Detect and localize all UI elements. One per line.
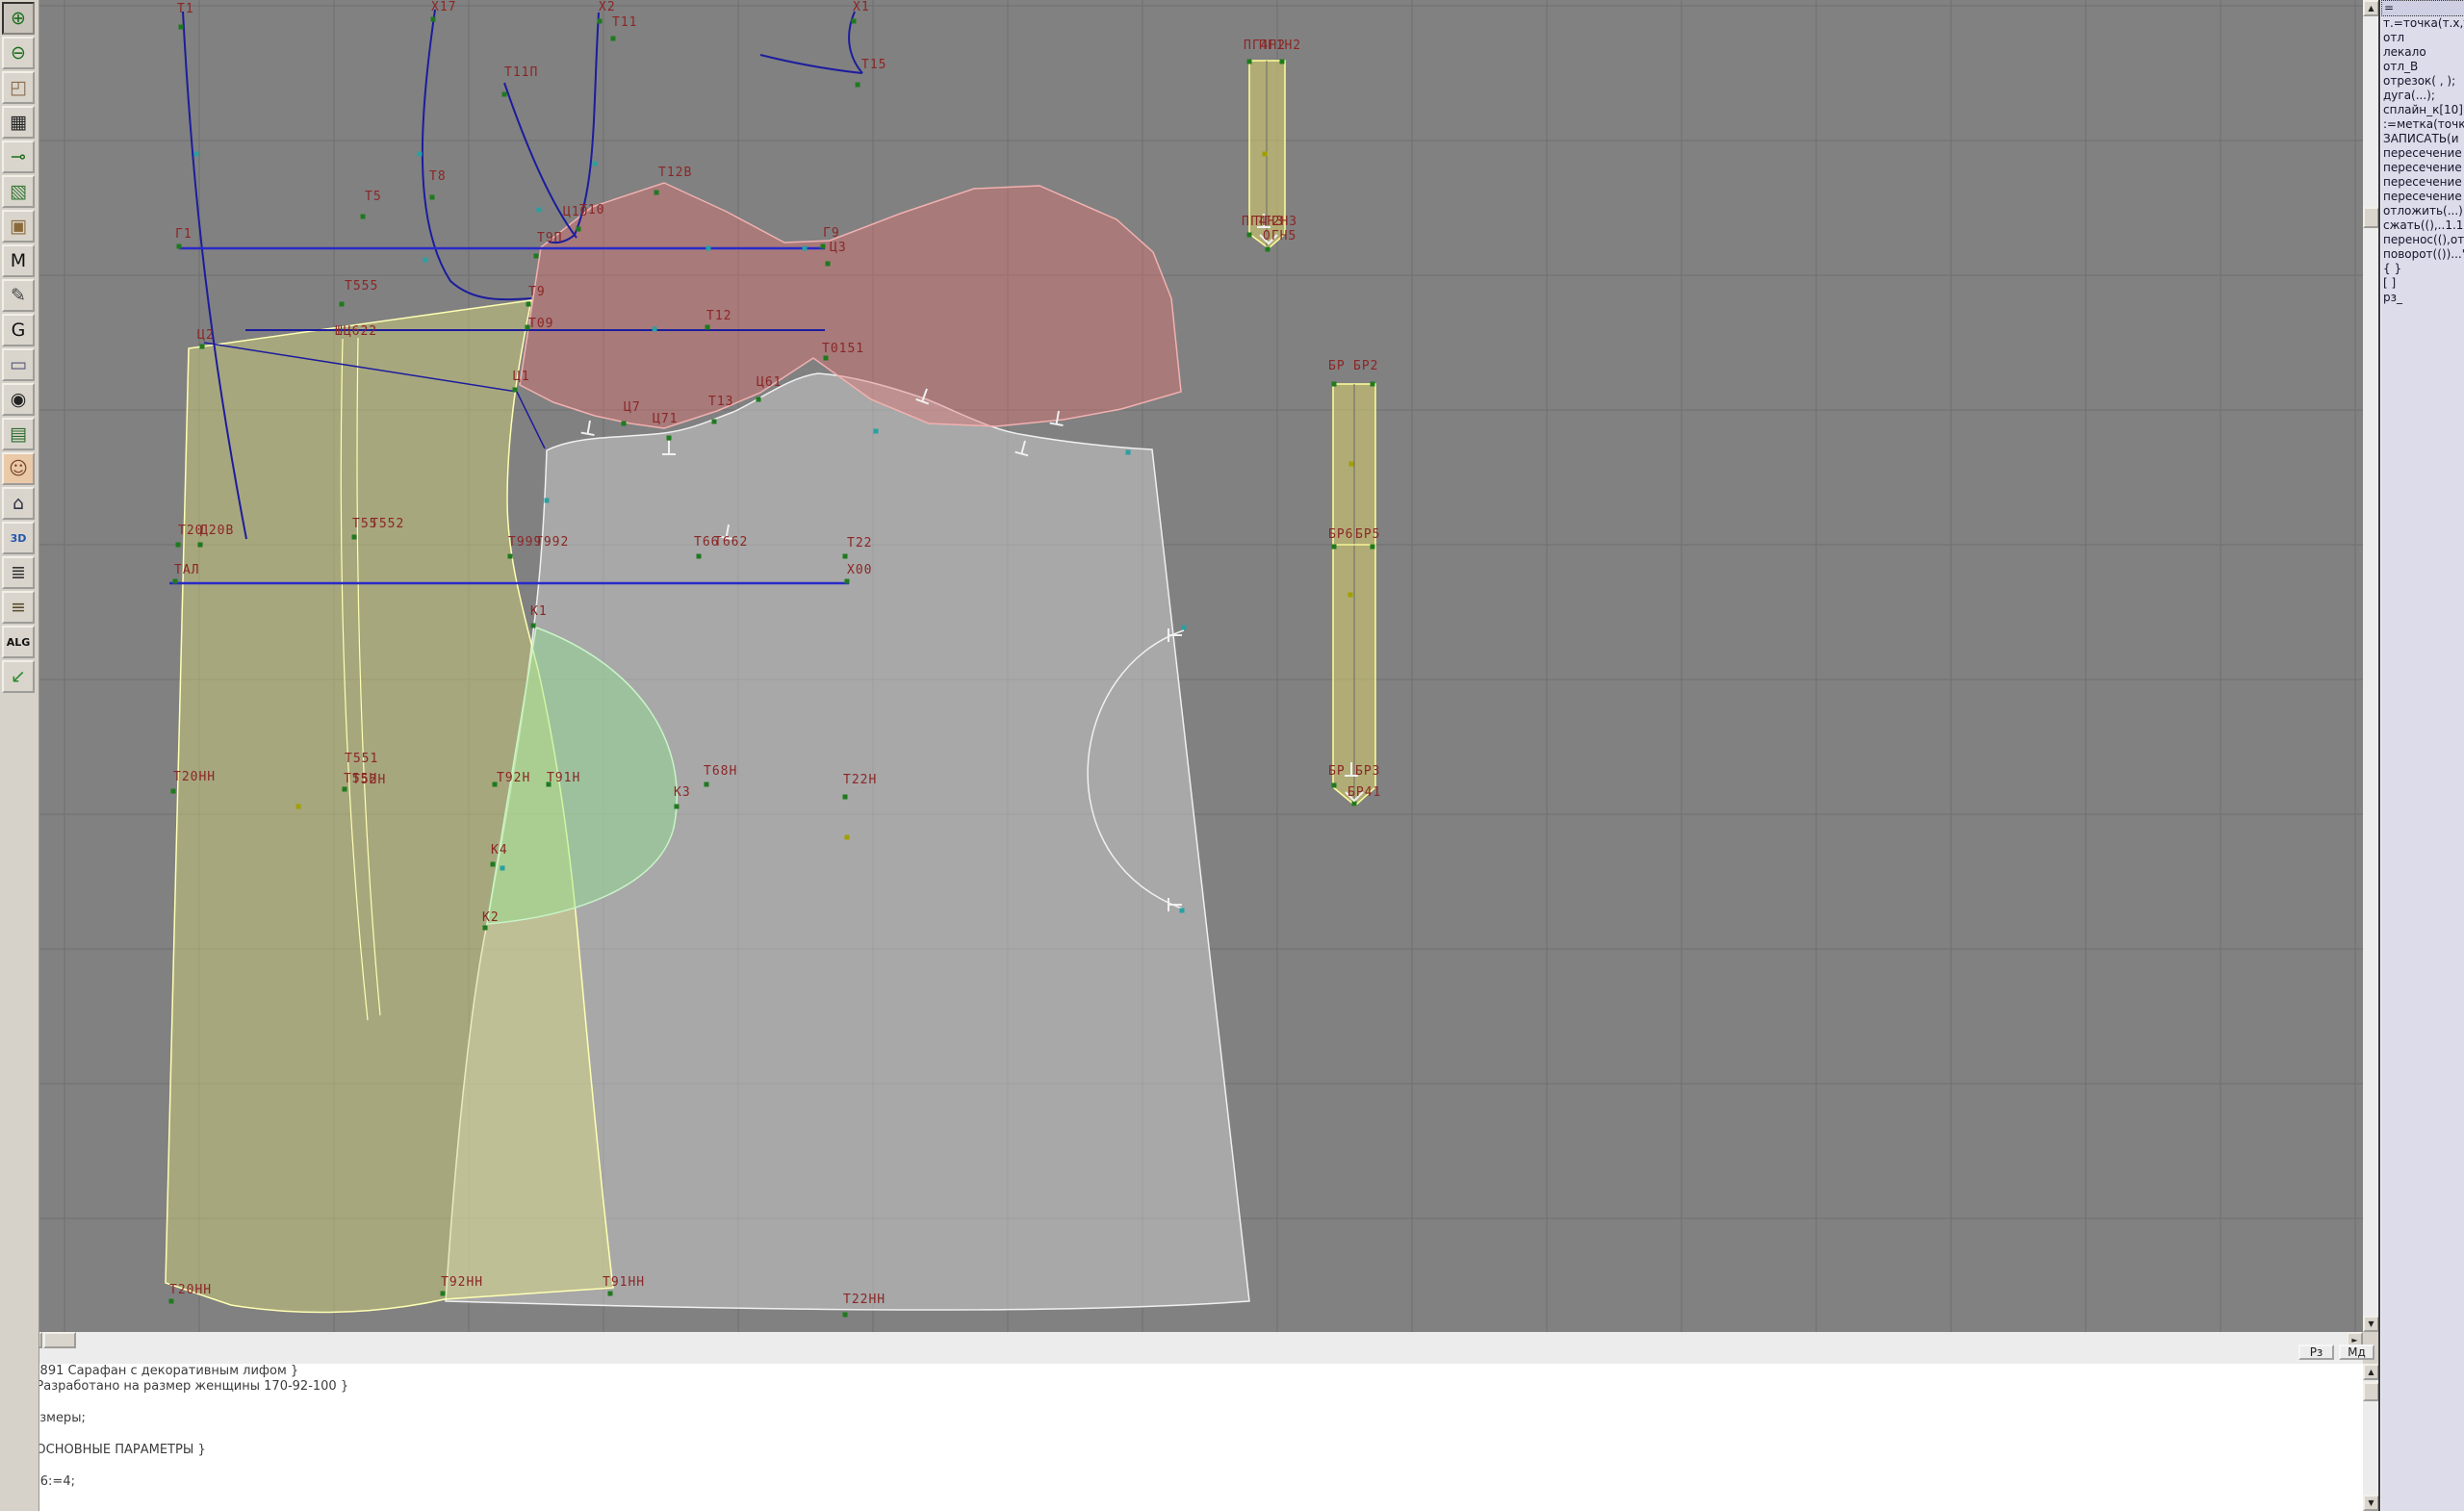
command-item[interactable]: сжать((),..1.1 xyxy=(2381,218,2464,233)
editor-line: { Разработано на размер женщины 170-92-1… xyxy=(24,1379,2363,1395)
canvas-vertical-scrollbar[interactable]: ▲ ▼ xyxy=(2363,0,2379,1332)
rz-button[interactable]: Рз xyxy=(2298,1345,2334,1360)
canvas-horizontal-scrollbar[interactable]: ◄ ► xyxy=(24,1332,2363,1348)
pattern-hand-icon: ◰ xyxy=(10,79,27,97)
editor-scroll-thumb[interactable] xyxy=(2363,1382,2379,1401)
vertical-scroll-thumb[interactable] xyxy=(2363,207,2379,228)
drawing-canvas[interactable] xyxy=(0,0,2464,1332)
grid-icon[interactable]: ▦ xyxy=(2,106,35,139)
3d-icon[interactable]: 3D xyxy=(2,522,35,554)
command-item[interactable]: перенос((),от xyxy=(2381,233,2464,247)
editor-line: размеры; xyxy=(24,1411,2363,1426)
editor-line xyxy=(24,1458,2363,1473)
scroll-down-icon[interactable]: ▼ xyxy=(2363,1316,2379,1332)
editor-vertical-scrollbar[interactable]: ▲ ▼ xyxy=(2363,1364,2379,1511)
command-item[interactable]: [ ] xyxy=(2381,276,2464,291)
portrait-photo-icon: ☺ xyxy=(9,460,28,478)
command-item[interactable]: ЗАПИСАТЬ(и xyxy=(2381,132,2464,146)
zoom-in-icon: ⊕ xyxy=(11,10,26,28)
parameters-list-icon[interactable]: ≣ xyxy=(2,556,35,589)
clear-broom-icon[interactable]: ↙ xyxy=(2,660,35,693)
pattern-cad-window: Т1Х17Х2Т11Х1Т15Т11ПТ8Т5Т12ВГ1Т9ПЦ10Т10Г9… xyxy=(0,0,2464,1511)
alg-document-icon: ALG xyxy=(7,637,31,648)
editor-line xyxy=(24,1396,2363,1411)
command-item[interactable]: лекало xyxy=(2381,45,2464,60)
measure-line-icon[interactable]: ⊸ xyxy=(2,141,35,173)
horizontal-scroll-thumb[interactable] xyxy=(43,1332,76,1348)
pattern-m-icon: M xyxy=(11,252,26,270)
command-item[interactable]: отл xyxy=(2381,31,2464,45)
chart-document-icon: ▤ xyxy=(10,425,27,444)
image-icon[interactable]: ▧ xyxy=(2,175,35,208)
pattern-piece-icon: ▣ xyxy=(10,218,27,236)
portrait-photo-icon[interactable]: ☺ xyxy=(2,452,35,485)
command-item[interactable]: = xyxy=(2381,0,2464,16)
md-button[interactable]: Мд xyxy=(2339,1345,2374,1360)
grid-icon: ▦ xyxy=(10,114,27,132)
tool-palette: ⊕⊖◰▦⊸▧▣M✎G▭◉▤☺⌂3D≣≡ALG↙ xyxy=(0,0,39,1511)
command-item[interactable]: :=метка(точк xyxy=(2381,117,2464,132)
editor-line: {5891 Сарафан с декоративным лифом } xyxy=(24,1364,2363,1379)
editor-scroll-down-icon[interactable]: ▼ xyxy=(2363,1495,2379,1511)
command-item[interactable]: поворот(())..." xyxy=(2381,247,2464,262)
pattern-piece-icon[interactable]: ▣ xyxy=(2,210,35,243)
command-item[interactable]: пересечение xyxy=(2381,161,2464,175)
zoom-out-icon[interactable]: ⊖ xyxy=(2,37,35,69)
command-item[interactable]: т.=точка(т.х,т xyxy=(2381,16,2464,31)
chart-document-icon[interactable]: ▤ xyxy=(2,418,35,450)
pattern-m-icon[interactable]: M xyxy=(2,244,35,277)
command-item[interactable]: { } xyxy=(2381,262,2464,276)
camera-icon[interactable]: ◉ xyxy=(2,383,35,416)
drafting-tools-icon: ✎ xyxy=(11,287,26,305)
command-item[interactable]: рз_ xyxy=(2381,291,2464,305)
zoom-out-icon: ⊖ xyxy=(11,44,26,63)
camera-icon: ◉ xyxy=(11,391,27,409)
editor-line: п16:=4; xyxy=(24,1474,2363,1490)
command-item[interactable]: пересечение xyxy=(2381,190,2464,204)
garment-sketch-icon[interactable]: ⌂ xyxy=(2,487,35,520)
zoom-in-icon[interactable]: ⊕ xyxy=(2,2,35,35)
status-row: 0 xyxy=(24,1348,2363,1364)
pattern-drawing xyxy=(0,0,2464,1332)
clear-broom-icon: ↙ xyxy=(11,668,26,686)
command-list-panel: =т.=точка(т.х,тотллекалоотл_Вотрезок( , … xyxy=(2380,0,2464,1511)
measure-line-icon: ⊸ xyxy=(11,148,26,166)
scroll-up-icon[interactable]: ▲ xyxy=(2363,0,2379,16)
editor-line xyxy=(24,1427,2363,1443)
pattern-g-icon[interactable]: G xyxy=(2,314,35,346)
command-item[interactable]: отрезок( , ); xyxy=(2381,74,2464,89)
command-item[interactable]: отложить(...); xyxy=(2381,204,2464,218)
program-text-editor[interactable]: {5891 Сарафан с декоративным лифом }{ Ра… xyxy=(24,1364,2363,1511)
books-icon: ≡ xyxy=(11,599,26,617)
command-item[interactable]: отл_В xyxy=(2381,60,2464,74)
books-icon[interactable]: ≡ xyxy=(2,591,35,624)
command-item[interactable]: сплайн_к[10] xyxy=(2381,103,2464,117)
ruler-icon: ▭ xyxy=(10,356,27,374)
image-icon: ▧ xyxy=(10,183,27,201)
command-item[interactable]: дуга(...); xyxy=(2381,89,2464,103)
ruler-icon[interactable]: ▭ xyxy=(2,348,35,381)
editor-scroll-up-icon[interactable]: ▲ xyxy=(2363,1364,2379,1380)
parameters-list-icon: ≣ xyxy=(11,564,26,582)
3d-icon: 3D xyxy=(11,533,27,544)
drafting-tools-icon[interactable]: ✎ xyxy=(2,279,35,312)
pattern-g-icon: G xyxy=(12,321,26,340)
command-item[interactable]: пересечение xyxy=(2381,175,2464,190)
alg-document-icon[interactable]: ALG xyxy=(2,626,35,658)
command-item[interactable]: пересечение xyxy=(2381,146,2464,161)
editor-line: { ОСНОВНЫЕ ПАРАМЕТРЫ } xyxy=(24,1443,2363,1458)
garment-sketch-icon: ⌂ xyxy=(13,495,24,513)
pattern-hand-icon[interactable]: ◰ xyxy=(2,71,35,104)
